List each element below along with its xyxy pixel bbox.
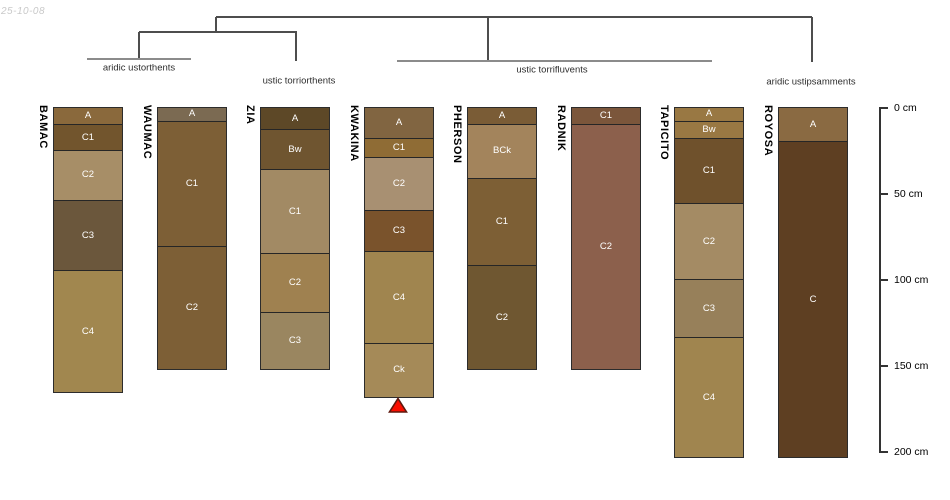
horizon-label: C2	[54, 170, 122, 180]
horizon-label: C4	[675, 393, 743, 403]
horizon-rect: C3	[54, 201, 122, 272]
marker-triangle-icon	[387, 397, 409, 414]
depth-tick-label: 100 cm	[894, 274, 928, 286]
profile-name-label: ROYOSA	[762, 105, 774, 156]
horizon-rect: C3	[261, 313, 329, 370]
horizon-rect: C1	[572, 108, 640, 125]
depth-tick	[879, 107, 888, 109]
horizon-label: Ck	[365, 365, 433, 375]
horizon-rect: C1	[675, 139, 743, 204]
dendrogram-segment	[811, 17, 813, 62]
horizon-rect: C2	[158, 247, 226, 369]
depth-tick	[879, 279, 888, 281]
profile-column: AC1C2C3C4Ck	[364, 107, 434, 398]
profile-column: AC1C2	[157, 107, 227, 370]
cluster-label: aridic ustipsamments	[766, 77, 855, 88]
horizon-label: C1	[54, 133, 122, 143]
depth-tick	[879, 365, 888, 367]
horizon-label: C2	[468, 313, 536, 323]
horizon-label: Bw	[261, 145, 329, 155]
horizon-rect: C4	[365, 252, 433, 343]
horizon-rect: Bw	[675, 122, 743, 139]
horizon-rect: C2	[572, 125, 640, 369]
dendrogram-segment	[138, 32, 140, 59]
profile-column: ABwC1C2C3	[260, 107, 330, 370]
cluster-label: aridic ustorthents	[103, 63, 175, 74]
horizon-label: C1	[572, 111, 640, 121]
horizon-label: C2	[365, 179, 433, 189]
horizon-label: BCk	[468, 146, 536, 156]
depth-tick-label: 150 cm	[894, 360, 928, 372]
horizon-label: A	[779, 120, 847, 130]
horizon-label: C1	[158, 179, 226, 189]
horizon-rect: A	[365, 108, 433, 139]
horizon-label: C2	[675, 237, 743, 247]
horizon-rect: C4	[675, 338, 743, 457]
horizon-rect: A	[261, 108, 329, 130]
horizon-label: C3	[675, 304, 743, 314]
depth-tick-label: 200 cm	[894, 446, 928, 458]
profile-column: ABCkC1C2	[467, 107, 537, 370]
horizon-label: Bw	[675, 125, 743, 135]
horizon-rect: A	[468, 108, 536, 125]
horizon-label: C2	[572, 242, 640, 252]
profile-name-label: BAMAC	[37, 105, 49, 149]
horizon-label: C3	[54, 231, 122, 241]
horizon-label: A	[365, 118, 433, 128]
depth-tick	[879, 451, 888, 453]
profile-name-label: TAPICITO	[658, 105, 670, 160]
profile-name-label: ZIA	[244, 105, 256, 125]
horizon-label: C4	[365, 293, 433, 303]
dendrogram-segment	[216, 16, 812, 18]
depth-tick-label: 50 cm	[894, 188, 923, 200]
horizon-rect: C2	[675, 204, 743, 280]
horizon-label: A	[261, 114, 329, 124]
horizon-rect: C1	[54, 125, 122, 151]
depth-tick	[879, 193, 888, 195]
horizon-rect: BCk	[468, 125, 536, 178]
depth-tick-label: 0 cm	[894, 102, 917, 114]
dendrogram-segment	[487, 17, 489, 61]
horizon-rect: C1	[468, 179, 536, 267]
horizon-label: C1	[468, 217, 536, 227]
horizon-label: C	[779, 295, 847, 305]
profile-name-label: KWAKINA	[348, 105, 360, 162]
dendrogram-segment	[139, 31, 297, 33]
soil-profile-dendrogram-figure: 25-10-08 aridic ustorthentsustic torrior…	[0, 0, 950, 500]
profile-column: C1C2	[571, 107, 641, 370]
cluster-terminal-line	[87, 58, 191, 60]
horizon-label: A	[158, 109, 226, 119]
cluster-label: ustic torriorthents	[263, 76, 336, 87]
marker-triangle-shape	[390, 399, 407, 413]
horizon-label: C1	[261, 207, 329, 217]
horizon-rect: A	[158, 108, 226, 122]
dendrogram-segment	[295, 32, 297, 61]
horizon-rect: C3	[675, 280, 743, 338]
cluster-label: ustic torrifluvents	[516, 65, 587, 76]
horizon-rect: C	[779, 142, 847, 457]
horizon-rect: C2	[54, 151, 122, 201]
horizon-rect: A	[779, 108, 847, 142]
horizon-label: A	[54, 111, 122, 121]
horizon-rect: A	[675, 108, 743, 122]
profile-name-label: PHERSON	[451, 105, 463, 164]
horizon-rect: A	[54, 108, 122, 125]
horizon-label: A	[675, 109, 743, 119]
profile-column: AC1C2C3C4	[53, 107, 123, 393]
horizon-label: C2	[158, 303, 226, 313]
horizon-rect: Bw	[261, 130, 329, 170]
dendrogram-segment	[215, 17, 217, 32]
horizon-rect: C1	[365, 139, 433, 158]
horizon-rect: C2	[261, 254, 329, 312]
horizon-label: C2	[261, 278, 329, 288]
horizon-rect: Ck	[365, 344, 433, 397]
horizon-label: A	[468, 111, 536, 121]
horizon-label: C3	[261, 336, 329, 346]
profile-column: AC	[778, 107, 848, 458]
date-label: 25-10-08	[1, 6, 45, 17]
horizon-rect: C2	[468, 266, 536, 369]
profile-column: ABwC1C2C3C4	[674, 107, 744, 458]
horizon-label: C1	[675, 166, 743, 176]
horizon-label: C1	[365, 143, 433, 153]
horizon-rect: C4	[54, 271, 122, 391]
cluster-terminal-line	[397, 60, 712, 62]
horizon-rect: C1	[261, 170, 329, 254]
horizon-rect: C3	[365, 211, 433, 252]
horizon-rect: C2	[365, 158, 433, 211]
profile-name-label: RADNIK	[555, 105, 567, 151]
horizon-label: C3	[365, 226, 433, 236]
profile-name-label: WAUMAC	[141, 105, 153, 159]
horizon-rect: C1	[158, 122, 226, 248]
horizon-label: C4	[54, 327, 122, 337]
